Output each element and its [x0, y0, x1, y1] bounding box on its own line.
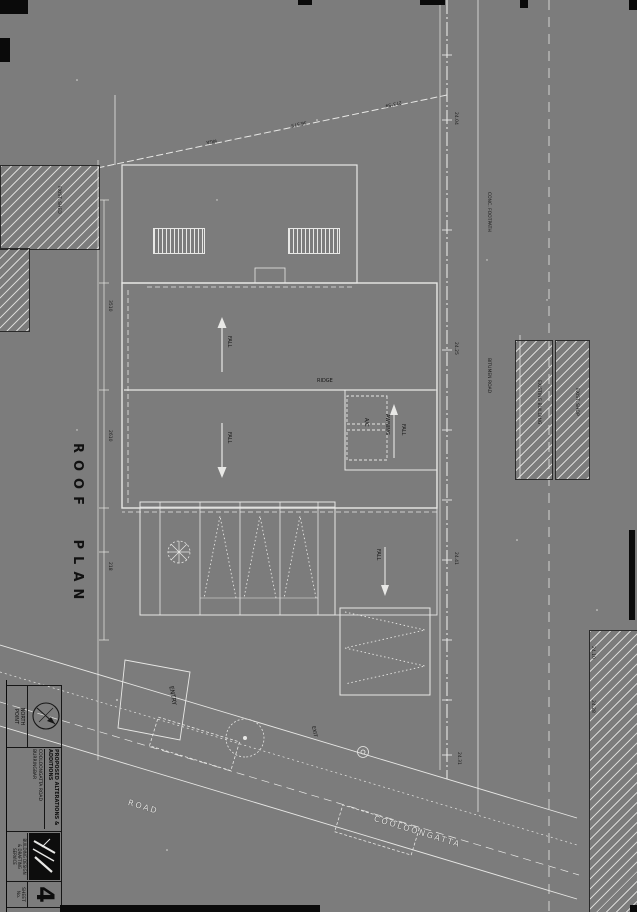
- ridge-label: RIDGE: [317, 378, 333, 384]
- roof-plan-drawing: ROOF PLAN RIDGE FALL FALL FALL AWNING FA…: [0, 0, 637, 912]
- scan-artifact-4: [60, 905, 320, 912]
- designer-logo: [29, 833, 60, 880]
- cooloongatta-road-lines: [0, 645, 579, 899]
- entry-awning: [340, 608, 430, 695]
- project-address: COOLOONGATTA ROAD BURRINGBAR: [31, 749, 45, 829]
- sheet-number-caption: SHEET No.: [15, 882, 28, 907]
- sheet-number: 4: [31, 882, 59, 907]
- fall-label-1: FALL: [226, 336, 232, 347]
- title-block-divider-2: [7, 831, 61, 832]
- scan-artifact-6: [0, 38, 10, 62]
- north-point-symbol: [29, 686, 61, 747]
- level-label-2: 24.25: [453, 342, 458, 355]
- neighbour-building-hatch-5: [0, 248, 30, 332]
- sheet-edge-line: [6, 680, 7, 912]
- scan-artifact-7: [520, 0, 528, 8]
- scanned-drawing-sheet: ROOF PLAN RIDGE FALL FALL FALL AWNING FA…: [0, 0, 637, 912]
- fall-label-2: FALL: [226, 432, 232, 443]
- north-label-line1: NORTH: [19, 686, 25, 747]
- title-block: NORTH POINT PROPOSED ALTERATIONS & ADDIT…: [6, 685, 62, 908]
- north-point-caption: NORTH POINT: [13, 686, 28, 747]
- scan-artifact-9: [298, 0, 312, 5]
- level-label-6: 24.31: [456, 752, 461, 765]
- level-label-1: 24.04: [453, 112, 458, 125]
- dim-label-3: 218: [107, 562, 112, 571]
- scan-artifact-8: [420, 0, 445, 5]
- neighbour-label-3: EXIST. SHED: [56, 186, 61, 230]
- building-roof-lines: [99, 165, 437, 640]
- project-title: PROPOSED ALTERATIONS & ADDITIONS: [47, 749, 59, 829]
- awning-bays: [140, 502, 335, 615]
- ac-unit-label: A/C: [363, 418, 369, 427]
- roof-vent-1: [288, 228, 340, 254]
- plan-title: ROOF PLAN: [70, 443, 85, 606]
- neighbour-label-1: EXISTING BUILDING: [536, 380, 541, 424]
- scan-artifact-3: [630, 905, 637, 912]
- scan-artifact-2: [629, 530, 635, 620]
- address-line-1: COOLOONGATTA ROAD: [37, 749, 43, 829]
- neighbour-label-2: EXIST. SHOP: [574, 388, 579, 416]
- bitumen-label: BITUMEN ROAD: [486, 358, 491, 394]
- dim-label-1: 3510: [107, 300, 112, 311]
- firm-line-3: SERVICE: [12, 833, 17, 880]
- sheet-label-2: No.: [15, 882, 20, 907]
- title-block-divider-1: [7, 747, 61, 748]
- neighbour-building-hatch-3: [589, 630, 637, 912]
- neighbour-building-hatch-4: [0, 165, 100, 250]
- designer-details: BUILDING DESIGN & DRAFTING SERVICE: [12, 833, 28, 880]
- awning-label: AWNING: [384, 414, 390, 435]
- level-label-5: 24.28: [590, 700, 595, 713]
- sheet-label-1: SHEET: [20, 882, 25, 907]
- scan-artifact-1: [629, 0, 637, 10]
- fall-label-3: FALL: [400, 424, 406, 435]
- level-label-3: 24.41: [453, 552, 458, 565]
- footpath-label: CONC. FOOTPATH: [486, 192, 491, 232]
- neighbour-building-hatch-2: [515, 340, 553, 480]
- level-label-4: 24.10: [590, 646, 595, 659]
- dim-label-2: 2610: [107, 430, 112, 441]
- fall-label-4: FALL: [375, 549, 381, 560]
- north-label-line2: POINT: [13, 686, 19, 747]
- neighbour-building-hatch-1: [555, 340, 590, 480]
- roof-vent-2: [153, 228, 205, 254]
- scan-artifact-5: [0, 0, 28, 14]
